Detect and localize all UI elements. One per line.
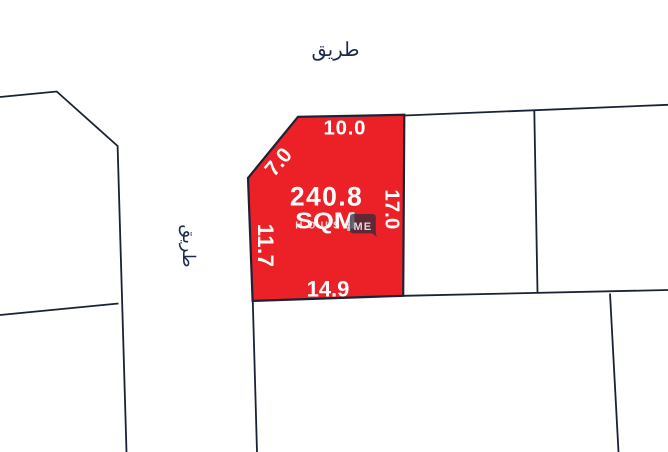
svg-text:14.9: 14.9 <box>307 277 350 302</box>
svg-text:11.7: 11.7 <box>253 224 278 268</box>
svg-text:ME: ME <box>354 221 373 233</box>
svg-text:طريق: طريق <box>178 224 199 267</box>
svg-text:17.0: 17.0 <box>381 189 404 229</box>
svg-text:طريق: طريق <box>312 39 360 61</box>
svg-text:10.0: 10.0 <box>324 117 367 139</box>
